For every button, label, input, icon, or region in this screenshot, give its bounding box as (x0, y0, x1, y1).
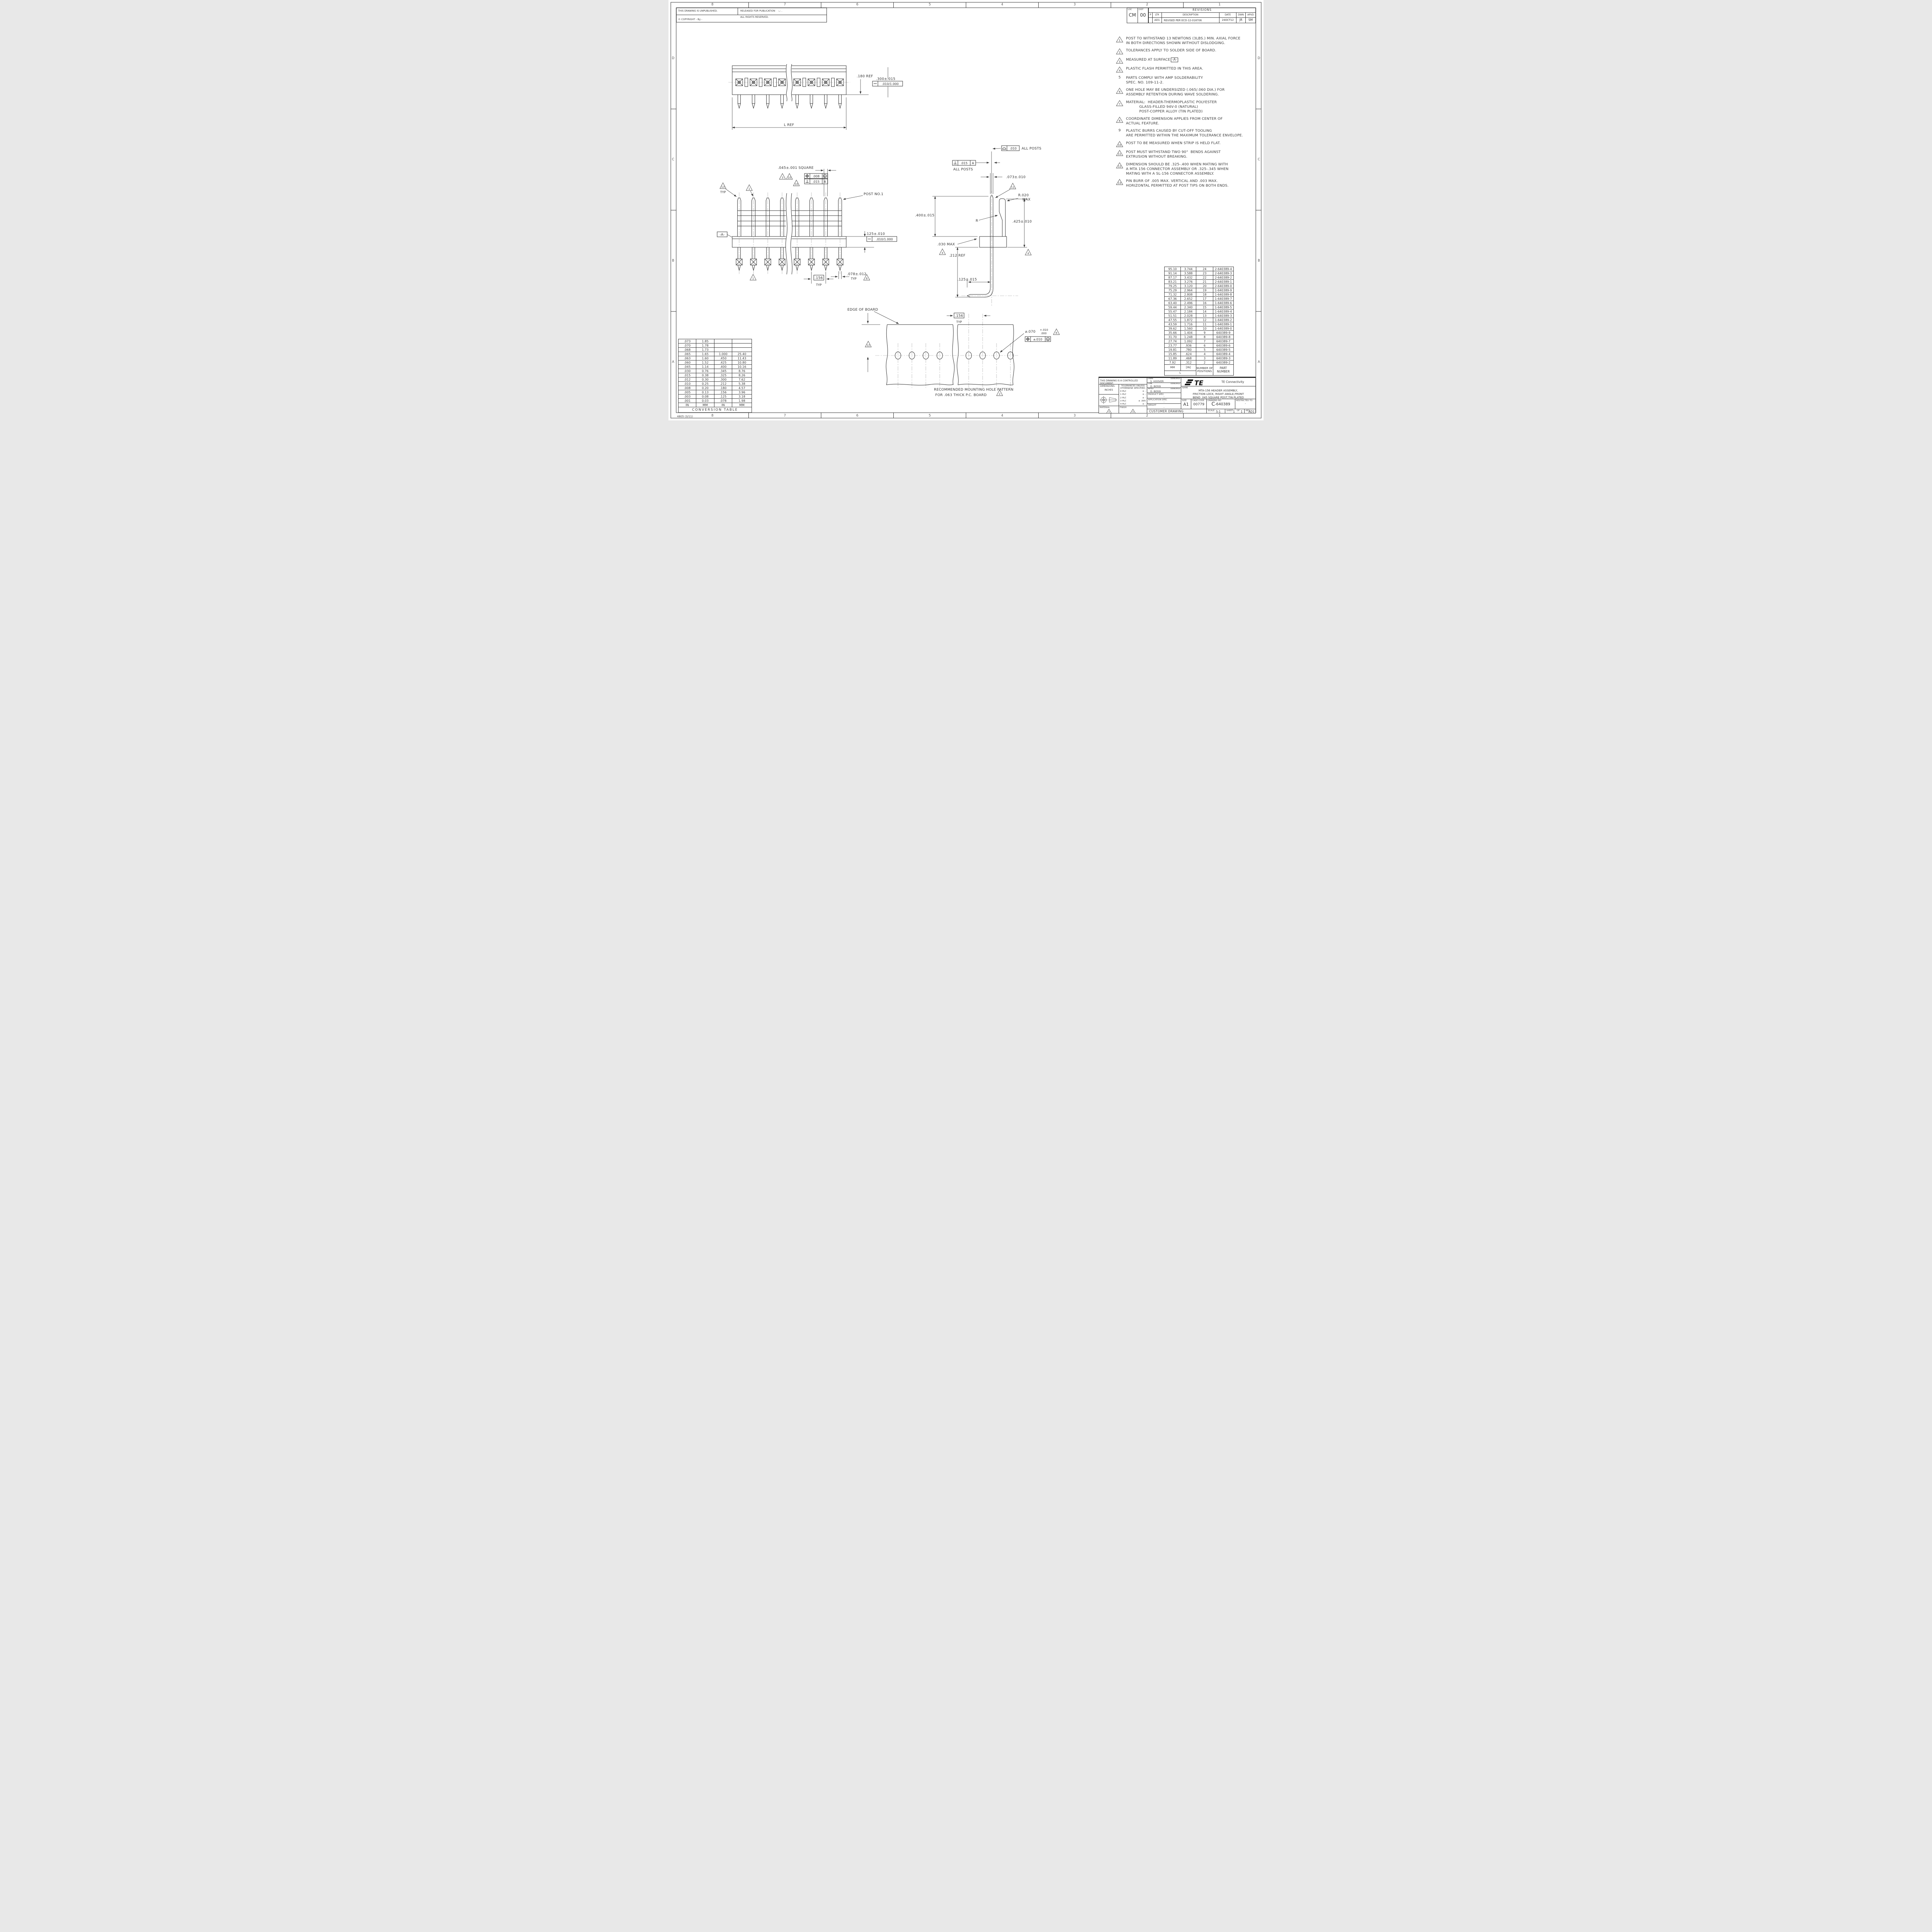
fcf-straightness-front: .010/1.000 (867, 236, 897, 241)
revision-row-description: REVISED PER ECO-12-018706 (1162, 17, 1219, 23)
svg-text:⌀.010: ⌀.010 (1034, 338, 1043, 341)
svg-text:4: 4 (942, 252, 943, 255)
part-table-row: 27.74 1.092 7 640389-7 (1165, 339, 1234, 344)
restricted-cell: RESTRICTED TO - (1235, 399, 1256, 409)
length-in: 3.432 (1181, 276, 1196, 280)
svg-text:-A-: -A- (719, 233, 724, 237)
part-number: 2-640389-4 (1213, 267, 1234, 271)
in-value: .078 (714, 399, 732, 403)
positions: 11 (1196, 322, 1213, 327)
svg-text:13: 13 (1118, 182, 1121, 185)
svg-text:ALL POSTS: ALL POSTS (1022, 147, 1041, 151)
svg-text:+.010: +.010 (1040, 328, 1048, 332)
part-number: 1-640389-8 (1213, 293, 1234, 297)
conversion-row: .015 0.38 .325 8.26 (679, 373, 752, 378)
note-7: 7 MATERIAL: HEADER-THERMOPLASTIC POLYEST… (1116, 100, 1260, 114)
mm-value: 0.08 (696, 395, 714, 399)
part-table-row: 23.77 .936 6 640389-6 (1165, 344, 1234, 348)
svg-text:1: 1 (752, 277, 754, 280)
datum-a: -A- (717, 232, 732, 237)
fcf-perpendicularity-post: .015 A (804, 179, 828, 184)
dim-125-side: .125±.015 (957, 278, 977, 282)
loc-cell: LOC CM (1127, 8, 1138, 23)
dim-030: .030 MAX (937, 243, 955, 247)
svg-text:11: 11 (1011, 186, 1015, 189)
mm-value: 1.65 (696, 352, 714, 356)
dim-400: .400±.015 (915, 214, 934, 218)
length-mm: 71.32 (1165, 293, 1181, 297)
zone-label: 5 (894, 2, 966, 7)
svg-text:10: 10 (795, 183, 798, 186)
svg-text:6: 6 (1056, 332, 1057, 335)
length-mm: 35.66 (1165, 331, 1181, 335)
conversion-row: .070 1.78 (679, 344, 752, 348)
length-mm: 31.70 (1165, 335, 1181, 339)
svg-text:4: 4 (1027, 252, 1029, 255)
in-value: 1.000 (714, 352, 732, 356)
in-value: .012 (679, 378, 696, 382)
dim-300: .300±.015 (876, 77, 895, 81)
revisions-col-description: DESCRIPTION (1162, 12, 1219, 18)
positions: 20 (1196, 284, 1213, 288)
in-value: .060 (679, 361, 696, 365)
length-in: 1.092 (1181, 339, 1196, 344)
flag-6-icon: 6 (1053, 329, 1060, 335)
fcf-profile-all-posts: .010 ALL POSTS (1002, 146, 1041, 151)
edge-of-board-label: EDGE OF BOARD (847, 308, 878, 312)
positions: 12 (1196, 318, 1213, 322)
in-value: .212 (714, 382, 732, 386)
svg-text:.010/1.000: .010/1.000 (876, 238, 893, 241)
drawing-no-cell: DRAWING NO C-640389 (1206, 399, 1235, 409)
length-mm: 51.51 (1165, 314, 1181, 318)
zone-label: 8 (676, 2, 749, 7)
part-number: 1-640389-5 (1213, 305, 1234, 310)
part-number: 640389-2 (1213, 361, 1234, 365)
customer-drawing-cell: CUSTOMER DRAWING (1147, 409, 1207, 413)
note-2: 2 TOLERANCES APPLY TO SOLDER SIDE OF BOA… (1116, 48, 1260, 54)
positions: 19 (1196, 288, 1213, 293)
mm-value: 0.20 (696, 386, 714, 390)
part-table-row: 31.70 1.248 8 640389-8 (1165, 335, 1234, 339)
dim-078: .078±.012 (847, 272, 866, 276)
flag-10-icon: 10 (786, 173, 793, 179)
mm-value: 0.76 (696, 369, 714, 373)
dim-212: .212 REF (949, 254, 965, 258)
logo-cell: TE TE Connectivity (1181, 378, 1256, 386)
part-table-row: 59.44 2.340 15 1-640389-5 (1165, 305, 1234, 310)
conversion-row: .001 0.03 .078 1.98 (679, 399, 752, 403)
svg-text:ALL POSTS: ALL POSTS (953, 168, 973, 172)
size-cell: SIZE A1 (1181, 399, 1191, 409)
part-table-row: 51.51 2.028 13 1-640389-3 (1165, 314, 1234, 318)
weight-cell: WEIGHT - (1147, 403, 1181, 409)
svg-text:12: 12 (1118, 165, 1121, 168)
legal-block: THIS DRAWING IS UNPUBLISHED. RELEASED FO… (676, 8, 827, 22)
typ-label: TYP (850, 277, 857, 281)
application-spec-cell: APPLICATION SPEC - (1147, 398, 1181, 404)
in-value: .325 (714, 373, 732, 378)
positions: 5 (1196, 348, 1213, 352)
board-outline (886, 325, 1014, 385)
part-table-row: 55.47 2.184 14 1-640389-4 (1165, 310, 1234, 314)
length-in: 2.340 (1181, 305, 1196, 310)
positions: 21 (1196, 280, 1213, 284)
length-mm: 75.29 (1165, 288, 1181, 293)
header-positions: NUMBER OF POSITIONS (1196, 365, 1213, 376)
mm-value: 1.78 (696, 344, 714, 348)
mm-value: 3.96 (732, 390, 752, 395)
length-mm: 55.47 (1165, 310, 1181, 314)
in-value: .125 (714, 395, 732, 399)
positions: 9 (1196, 331, 1213, 335)
positions: 4 (1196, 352, 1213, 356)
zone-label: 4 (966, 413, 1039, 418)
length-in: 2.808 (1181, 293, 1196, 297)
mm-value: 8.26 (732, 373, 752, 378)
controlled-document-note: THIS DRAWING IS A CONTROLLED DOCUMENT. (1099, 378, 1147, 384)
zone-label: C (670, 109, 676, 210)
note-11: 11 POST MUST WITHSTAND TWO 90° BENDS AGA… (1116, 150, 1260, 159)
third-angle-projection-icon (1099, 395, 1118, 405)
part-number: 1-640389-2 (1213, 318, 1234, 322)
fcf-perpendicularity-all-posts: .015 A ALL POSTS (952, 160, 976, 172)
mm-value: 5.38 (732, 382, 752, 386)
part-table-row: 43.59 1.716 11 1-640389-1 (1165, 322, 1234, 327)
part-table-row: 47.55 1.872 12 1-640389-2 (1165, 318, 1234, 322)
part-table-row: 75.29 2.964 19 1-640389-9 (1165, 288, 1234, 293)
positions: 16 (1196, 301, 1213, 305)
mm-value: 1.60 (696, 356, 714, 361)
in-value: .068 (679, 348, 696, 352)
part-number: 1-640389-0 (1213, 327, 1234, 331)
length-in: 3.588 (1181, 271, 1196, 276)
mm-value: 1.98 (732, 399, 752, 403)
positions: 10 (1196, 327, 1213, 331)
part-table-row: 71.32 2.808 18 1-640389-8 (1165, 293, 1234, 297)
flag-4-icon: 4 (939, 249, 946, 255)
rev-cell: REV AD1 (1244, 409, 1256, 413)
dim-156-board-box: .156 TYP (954, 313, 964, 324)
note-5: 5 PARTS COMPLY WITH AMP SOLDERABILITY SP… (1116, 76, 1260, 85)
mm-value: 25.40 (732, 352, 752, 356)
dim-125: .125±.010 (866, 232, 885, 236)
mounting-caption-line2: FOR .063 THICK P.C. BOARD (935, 393, 987, 397)
length-mm: 79.25 (1165, 284, 1181, 288)
side-view: .010 ALL POSTS .015 A ALL POSTS .073±.01 (915, 146, 1041, 307)
conversion-row: .060 1.52 .425 10.80 (679, 361, 752, 365)
zone-label: 1 (1184, 413, 1256, 418)
zone-label: B (670, 210, 676, 311)
conversion-row: .012 0.30 .300 7.62 (679, 378, 752, 382)
part-number: 2-640389-3 (1213, 271, 1234, 276)
sheet-cell: SHEET 1 OF 1 (1225, 409, 1245, 413)
svg-text:3: 3 (782, 176, 783, 179)
conversion-row: .030 0.76 .345 8.76 (679, 369, 752, 373)
part-number: 2-640389-0 (1213, 284, 1234, 288)
fcf-position-post: .008 M (804, 173, 828, 179)
length-in: .312 (1181, 361, 1196, 365)
front-view: .045±.001 SQUARE 3 10 10 .008 M (717, 166, 897, 287)
dist-cell: DIST 00 (1138, 8, 1148, 23)
zone-label: A (1256, 311, 1262, 413)
typ-label: TYP (720, 190, 726, 194)
flag-4-icon: 4 (1025, 249, 1031, 255)
zone-label: 4 (966, 2, 1039, 7)
form-number: 4805 (3/11) (677, 415, 693, 418)
part-number: 640389-7 (1213, 339, 1234, 344)
svg-text:4: 4 (1119, 69, 1120, 72)
part-table-row: 79.25 3.120 20 2-640389-0 (1165, 284, 1234, 288)
in-value: .008 (679, 386, 696, 390)
part-number: 1-640389-1 (1213, 322, 1234, 327)
mm-value: 1.85 (696, 339, 714, 344)
part-table-row: 95.10 3.744 24 2-640389-4 (1165, 267, 1234, 271)
svg-text:7: 7 (1108, 411, 1110, 413)
svg-text:TYP: TYP (816, 283, 822, 287)
svg-text:2: 2 (999, 393, 1000, 396)
unit-mm: MM (732, 403, 752, 407)
zone-label: 7 (749, 413, 821, 418)
positions: 8 (1196, 335, 1213, 339)
name-cell: NAME MTA-156 HEADER ASSEMBLY, FRICTION L… (1181, 386, 1256, 399)
length-in: .624 (1181, 352, 1196, 356)
part-number: 1-640389-9 (1213, 288, 1234, 293)
positions: 22 (1196, 276, 1213, 280)
note-13: 13 PIN BURR OF .005 MAX. VERTICAL AND .0… (1116, 179, 1260, 188)
conversion-table-title: CONVERSION TABLE (679, 407, 752, 413)
in-value: .425 (714, 361, 732, 365)
svg-text:7: 7 (1132, 411, 1134, 413)
note-8: 8 COORDINATE DIMENSION APPLIES FROM CENT… (1116, 117, 1260, 126)
zone-label: 3 (1039, 413, 1111, 418)
positions: 13 (1196, 314, 1213, 318)
positions: 15 (1196, 305, 1213, 310)
svg-text:A: A (972, 162, 974, 165)
svg-text:10: 10 (788, 176, 791, 179)
revisions-block: REVISIONS P LTR DESCRIPTION DATE DWN APV… (1148, 8, 1256, 23)
in-value: .065 (679, 352, 696, 356)
conversion-row: .005 0.13 .156 3.96 (679, 390, 752, 395)
unpublished-note: THIS DRAWING IS UNPUBLISHED. (676, 8, 738, 15)
mm-value (732, 344, 752, 348)
length-mm: 23.77 (1165, 344, 1181, 348)
svg-text:.156: .156 (815, 276, 823, 280)
note-3: 3 MEASURED AT SURFACE-A- (1116, 58, 1260, 64)
length-mm: 43.59 (1165, 322, 1181, 327)
svg-text:3: 3 (1119, 60, 1120, 63)
zone-columns-bottom: 87654321 (676, 413, 1256, 418)
length-in: 1.560 (1181, 327, 1196, 331)
length-mm: 67.36 (1165, 297, 1181, 301)
in-value: .010 (679, 382, 696, 386)
dim-hole-dia: ⌀.070 +.010 .000 (1025, 328, 1048, 335)
svg-text:TYP: TYP (956, 320, 962, 324)
in-value: .300 (714, 378, 732, 382)
conversion-row: .068 1.73 (679, 348, 752, 352)
unit-in: IN (714, 403, 732, 407)
in-value: .001 (679, 399, 696, 403)
part-number: 2-640389-1 (1213, 280, 1234, 284)
zone-label: B (1256, 210, 1262, 311)
length-mm: 95.10 (1165, 267, 1181, 271)
header-part-number: PART NUMBER (1213, 365, 1234, 376)
drawing-title: MTA-156 HEADER ASSEMBLY, FRICTION LOCK, … (1181, 389, 1255, 399)
flag-1-icon: 1 (750, 274, 756, 280)
scale-cell: SCALE 5:1 (1206, 409, 1225, 413)
mm-value (732, 339, 752, 344)
header-l: L (1165, 371, 1196, 376)
flag-1-icon: 1 (746, 185, 752, 190)
tolerances-cell: TOLERANCES UNLESS OTHERWISE SPECIFIED: 0… (1119, 384, 1147, 406)
flag-11-icon: 11 (1010, 183, 1016, 189)
company-name: TE Connectivity (1221, 381, 1244, 384)
zone-label: 2 (1111, 413, 1184, 418)
part-number: 640389-5 (1213, 348, 1234, 352)
mm-value: 10.16 (732, 365, 752, 369)
length-mm: 63.40 (1165, 301, 1181, 305)
length-mm: 87.17 (1165, 276, 1181, 280)
in-value: .180 (714, 386, 732, 390)
positions: 14 (1196, 310, 1213, 314)
revisions-col-ltr: LTR (1152, 12, 1162, 18)
projection-symbol-cell (1099, 394, 1119, 406)
zone-label: 6 (821, 2, 894, 7)
zone-columns-top: 87654321 (676, 2, 1256, 7)
zone-rows-left: DCBA (670, 8, 676, 413)
in-value (714, 348, 732, 352)
in-value: .073 (679, 339, 696, 344)
flag-3-icon: 3 (779, 173, 786, 179)
zone-label: 5 (894, 413, 966, 418)
fcf-position-hole: ⌀.010 M (1025, 337, 1051, 342)
zone-label: 1 (1184, 2, 1256, 7)
revisions-col-dwn: DWN (1236, 12, 1246, 18)
mm-value: 0.25 (696, 382, 714, 386)
mm-value: 1.73 (696, 348, 714, 352)
part-table-row: 35.66 1.404 9 640389-9 (1165, 331, 1234, 335)
revision-row-date: 24OCT12 (1219, 17, 1236, 23)
unit-in: IN (679, 403, 696, 407)
positions: 6 (1196, 344, 1213, 348)
part-number: 640389-8 (1213, 335, 1234, 339)
dwn-cell: DWN05NOV02 S. HOOVER (1147, 378, 1181, 383)
drawing-sheet: .180 REF .300±.015 .010/1.000 L REF (668, 0, 1264, 420)
part-table-row: 67.36 2.652 17 1-640389-7 (1165, 297, 1234, 301)
positions: 18 (1196, 293, 1213, 297)
length-in: 3.744 (1181, 267, 1196, 271)
svg-text:A: A (824, 180, 826, 184)
in-value: .156 (714, 390, 732, 395)
part-table-row: 87.17 3.432 22 2-640389-2 (1165, 276, 1234, 280)
dim-073: .073±.010 (1006, 175, 1026, 179)
post-no1-label: POST NO.1 (864, 192, 883, 196)
te-logo: TE (1184, 378, 1217, 386)
flag-12-icon: 12 (865, 341, 871, 347)
positions: 24 (1196, 267, 1213, 271)
conversion-row: .008 0.20 .180 4.57 (679, 386, 752, 390)
conversion-row: .010 0.25 .212 5.38 (679, 382, 752, 386)
part-number: 640389-3 (1213, 356, 1234, 361)
mm-value: 4.57 (732, 386, 752, 390)
note-6: 6 ONE HOLE MAY BE UNDERSIZED (.065/.060 … (1116, 88, 1260, 97)
cage-code-cell: CAGE CODE 00779 (1191, 399, 1207, 409)
top-view: .180 REF .300±.015 .010/1.000 L REF (728, 63, 903, 130)
zone-label: 2 (1111, 2, 1184, 7)
length-in: .780 (1181, 348, 1196, 352)
length-mm: 59.44 (1165, 305, 1181, 310)
dim-r020-max: MAX (1022, 198, 1031, 202)
length-mm: 11.89 (1165, 356, 1181, 361)
in-value: .003 (679, 395, 696, 399)
mm-value: 1.14 (696, 365, 714, 369)
revisions-col-apvd: APVD (1245, 12, 1256, 18)
conversion-table: .073 1.85 .070 1.78 .068 1.73 (678, 339, 752, 413)
part-number: 640389-6 (1213, 344, 1234, 348)
notes-list: 1 POST TO WITHSTAND 13 NEWTONS (3LBS.) M… (1116, 36, 1260, 191)
copyright-note: © COPYRIGHT - By - ALL RIGHTS RESERVED. (676, 15, 827, 22)
in-value: .450 (714, 356, 732, 361)
dim-l-ref: L REF (784, 123, 794, 127)
length-mm: 39.62 (1165, 327, 1181, 331)
positions: 2 (1196, 361, 1213, 365)
finish-cell: FINISH 7 (1119, 406, 1147, 413)
svg-text:.000: .000 (1041, 332, 1047, 335)
length-in: 2.028 (1181, 314, 1196, 318)
loc-dist-block: LOC CM DIST 00 (1127, 8, 1148, 23)
length-mm: 7.92 (1165, 361, 1181, 365)
length-in: 1.248 (1181, 335, 1196, 339)
part-table-row: 83.21 3.276 21 2-640389-1 (1165, 280, 1234, 284)
svg-text:.015: .015 (961, 162, 968, 165)
note-1: 1 POST TO WITHSTAND 13 NEWTONS (3LBS.) M… (1116, 36, 1260, 46)
conversion-title-row: CONVERSION TABLE (679, 407, 752, 413)
positions: 3 (1196, 356, 1213, 361)
length-in: 2.184 (1181, 310, 1196, 314)
svg-text:8: 8 (1119, 119, 1120, 122)
mm-value: 10.80 (732, 361, 752, 365)
product-spec-cell: PRODUCT SPEC - (1147, 393, 1181, 398)
positions: 23 (1196, 271, 1213, 276)
part-number: 1-640389-4 (1213, 310, 1234, 314)
unit-mm: MM (696, 403, 714, 407)
revisions-col-date: DATE (1219, 12, 1236, 18)
svg-text:.156: .156 (955, 314, 963, 318)
svg-text:8: 8 (866, 277, 867, 280)
mm-value: 1.52 (696, 361, 714, 365)
dim-156-box: .156 TYP (814, 275, 824, 287)
side-view-body (967, 196, 1007, 297)
svg-text:12: 12 (867, 344, 870, 347)
length-in: 1.404 (1181, 331, 1196, 335)
zone-label: 6 (821, 413, 894, 418)
material-cell: MATERIAL 7 (1099, 406, 1119, 413)
length-in: .468 (1181, 356, 1196, 361)
revision-row-apvd: SM (1245, 17, 1256, 23)
length-mm: 47.55 (1165, 318, 1181, 322)
mm-value: 11.43 (732, 356, 752, 361)
length-in: 2.496 (1181, 301, 1196, 305)
svg-text:1: 1 (1119, 39, 1120, 42)
zone-label: D (670, 8, 676, 109)
in-value: .070 (679, 344, 696, 348)
positions: 7 (1196, 339, 1213, 344)
in-value: .345 (714, 369, 732, 373)
part-table-row: 91.14 3.588 23 2-640389-3 (1165, 271, 1234, 276)
mm-value: 8.76 (732, 369, 752, 373)
zone-label: 3 (1039, 2, 1111, 7)
dimensions-cell: DIMENSIONS: INCHES (1099, 384, 1119, 395)
